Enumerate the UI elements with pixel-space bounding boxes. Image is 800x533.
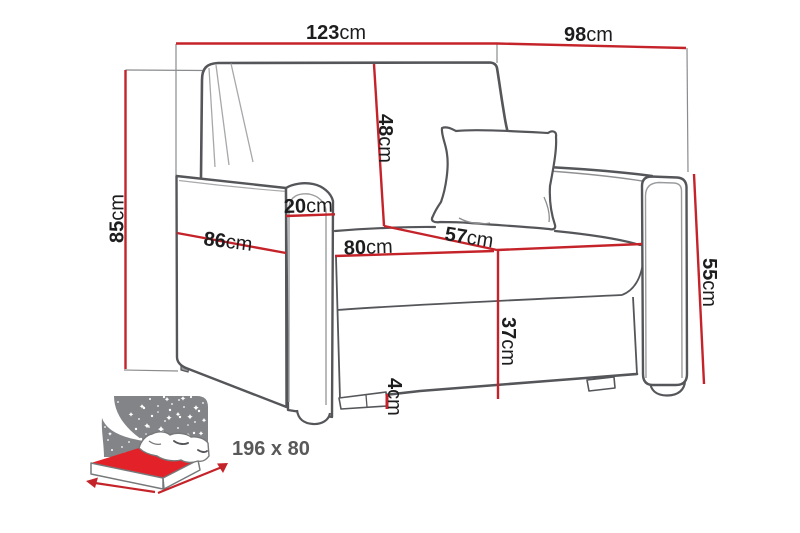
- svg-text:98cm: 98cm: [564, 24, 613, 46]
- svg-text:85cm: 85cm: [107, 194, 129, 243]
- svg-text:80cm: 80cm: [343, 236, 393, 260]
- svg-text:55cm: 55cm: [698, 258, 720, 307]
- svg-text:123cm: 123cm: [306, 22, 366, 44]
- svg-text:196 x 80: 196 x 80: [232, 438, 310, 460]
- svg-text:20cm: 20cm: [284, 195, 333, 218]
- svg-text:48cm: 48cm: [374, 114, 396, 163]
- svg-text:37cm: 37cm: [497, 317, 519, 366]
- svg-text:4cm: 4cm: [383, 378, 405, 416]
